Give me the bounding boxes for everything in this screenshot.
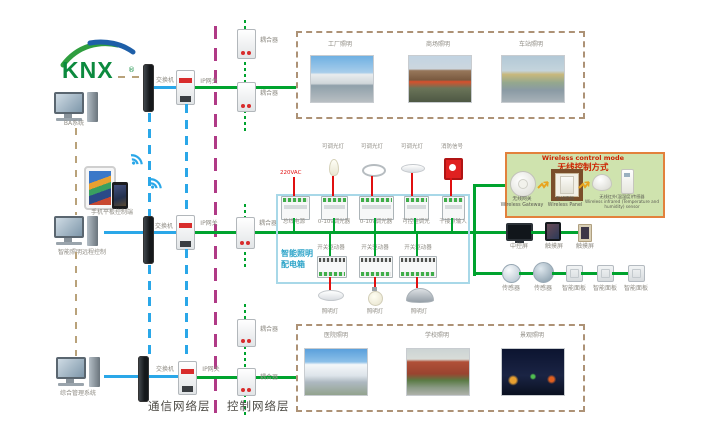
knx-logo-text: KNX bbox=[62, 57, 114, 83]
photo-school bbox=[406, 348, 470, 396]
label-touch-screen-1: 触摸屏 bbox=[540, 244, 568, 251]
module-switch-actuator-2 bbox=[359, 256, 393, 278]
switch-3 bbox=[138, 356, 149, 402]
wireless-gateway-device bbox=[510, 171, 536, 197]
module-face bbox=[445, 205, 462, 209]
bus-stub bbox=[333, 218, 335, 232]
pc-tower bbox=[87, 92, 98, 122]
label-ip-gateway-3: IP网关 bbox=[198, 367, 224, 374]
label-central-screen: 中控屏 bbox=[500, 244, 538, 251]
power-line bbox=[411, 173, 413, 196]
photo-station bbox=[501, 55, 565, 103]
label-smart-panel-3: 智能面板 bbox=[620, 286, 652, 293]
label-coupler-2: 耦合器 bbox=[256, 91, 282, 98]
rf-link-icon bbox=[537, 176, 550, 195]
monitor bbox=[54, 216, 84, 238]
knx-branch-line bbox=[473, 272, 502, 275]
label-switch-1: 交换机 bbox=[153, 78, 177, 85]
label-switch-2: 交换机 bbox=[152, 224, 176, 231]
power-line bbox=[293, 177, 295, 196]
lan-line bbox=[149, 375, 178, 378]
label-factory-lighting: 工厂照明 bbox=[310, 42, 370, 49]
gateway-terminals bbox=[182, 386, 193, 392]
photo-landscape bbox=[501, 348, 565, 396]
label-lamp-2: 照明灯 bbox=[359, 309, 391, 315]
knx-branch-line bbox=[473, 184, 476, 276]
label-wireless-gateway: 无线网关 Wireless Gateway bbox=[500, 197, 544, 209]
module-terminals bbox=[406, 198, 427, 202]
label-coupler-5: 耦合器 bbox=[256, 375, 282, 382]
distribution-box-title-line2: 配电箱 bbox=[281, 260, 313, 271]
lan-line bbox=[154, 231, 176, 234]
lan-dashed-line bbox=[148, 113, 151, 216]
ip-gateway-3 bbox=[178, 361, 197, 395]
coupler-terminals bbox=[241, 51, 245, 55]
gateway-band bbox=[179, 223, 192, 228]
label-sensor-1: 传感器 bbox=[497, 286, 525, 293]
label-switch-3: 交换机 bbox=[153, 367, 177, 374]
central-screen bbox=[506, 223, 533, 241]
label-lamp-1: 照明灯 bbox=[314, 309, 346, 315]
touch-screen-1 bbox=[545, 222, 561, 241]
diagram-canvas: KNX ® BA系统 手机平板控制端 智能照明远程控制 综合管理系统 交换机 I… bbox=[0, 0, 715, 443]
knx-branch-line bbox=[581, 272, 597, 275]
wireless-gateway-en: Wireless Gateway bbox=[501, 203, 544, 208]
module-dimmer-1 bbox=[321, 196, 348, 220]
lan-dashed-line bbox=[148, 265, 151, 357]
power-line bbox=[450, 178, 452, 196]
coupler-terminals bbox=[240, 241, 244, 245]
coupler-terminals bbox=[241, 388, 245, 392]
module-face bbox=[284, 205, 307, 209]
bus-stub bbox=[414, 218, 416, 232]
switch-1 bbox=[143, 64, 154, 112]
coupler-5 bbox=[237, 368, 256, 396]
label-smart-panel-2: 智能面板 bbox=[589, 286, 621, 293]
module-face bbox=[362, 205, 391, 209]
backbone-line bbox=[75, 252, 77, 356]
coupler-1 bbox=[237, 29, 256, 59]
label-dry-contact: 干接点输入 bbox=[435, 219, 471, 225]
label-fire-signal: 消防信号 bbox=[437, 144, 467, 150]
photo-factory bbox=[310, 55, 374, 103]
knx-branch-line bbox=[519, 272, 533, 275]
power-line bbox=[416, 277, 418, 288]
bus-stub bbox=[416, 234, 418, 256]
label-station-lighting: 车站照明 bbox=[501, 42, 561, 49]
backbone-line bbox=[75, 128, 77, 215]
gateway-terminals bbox=[180, 241, 191, 247]
monitor bbox=[54, 92, 84, 114]
lan-line bbox=[104, 375, 138, 378]
lamp-2 bbox=[368, 291, 383, 306]
label-mall-lighting: 商场照明 bbox=[408, 42, 468, 49]
label-ba-system: BA系统 bbox=[46, 121, 102, 128]
label-hospital-lighting: 医院照明 bbox=[306, 333, 366, 340]
monitor bbox=[56, 357, 86, 379]
module-terminals bbox=[283, 198, 308, 202]
label-wireless-sensor: 无线红外(温湿度)传感器 Wireless infrared (Temperat… bbox=[585, 194, 659, 209]
label-actuator-3: 开关驱动器 bbox=[395, 245, 441, 251]
label-school-lighting: 学校照明 bbox=[407, 333, 467, 340]
downlight-lamp bbox=[362, 164, 386, 177]
monitor-base bbox=[56, 242, 82, 245]
pc-tower bbox=[87, 216, 98, 246]
label-wireless-panel: 无线面板 Wireless Panel bbox=[543, 197, 587, 209]
power-line bbox=[329, 277, 331, 290]
module-terminals bbox=[361, 258, 391, 262]
lamp-1 bbox=[318, 290, 344, 301]
rf-link-icon bbox=[578, 176, 591, 195]
label-dimmable-lamp-2: 可调光灯 bbox=[357, 144, 387, 150]
monitor-base bbox=[58, 383, 84, 386]
phone bbox=[112, 182, 128, 209]
label-remote-control: 智能照明远程控制 bbox=[36, 250, 128, 257]
module-switch-actuator-3 bbox=[399, 256, 437, 278]
knx-registered-mark: ® bbox=[128, 66, 135, 74]
label-coupler-1: 耦合器 bbox=[256, 38, 282, 45]
candle-lamp bbox=[329, 159, 339, 176]
touch-screen-2 bbox=[578, 224, 592, 242]
fire-alarm bbox=[444, 158, 463, 180]
label-ip-gateway-2: IP网关 bbox=[196, 221, 222, 228]
wireless-sensor-unit bbox=[621, 169, 634, 194]
bus-stub bbox=[293, 218, 295, 232]
lan-line bbox=[104, 231, 143, 234]
lan-line bbox=[154, 86, 176, 89]
module-terminals bbox=[361, 198, 392, 202]
pc-remote-control bbox=[54, 216, 104, 252]
label-dimmable-lamp-3: 可调光灯 bbox=[397, 144, 427, 150]
label-coupler-4: 耦合器 bbox=[256, 327, 282, 334]
label-ip-gateway-1: IP网关 bbox=[196, 79, 222, 86]
pc-management-system bbox=[56, 357, 106, 393]
distribution-box-title: 智能照明 配电箱 bbox=[281, 249, 313, 271]
bus-stub bbox=[329, 234, 331, 256]
wireless-gateway-zh: 无线网关 bbox=[512, 197, 531, 202]
module-terminals bbox=[361, 272, 391, 276]
wireless-panel-zh: 无线面板 bbox=[555, 197, 574, 202]
wifi-icon bbox=[141, 168, 170, 198]
ip-gateway-2 bbox=[176, 215, 195, 250]
bus-stub bbox=[374, 218, 376, 232]
label-smart-panel-1: 智能面板 bbox=[558, 286, 590, 293]
power-line bbox=[371, 176, 373, 196]
lan-dashed-line bbox=[185, 104, 188, 214]
lamp-3 bbox=[406, 288, 434, 303]
label-lamp-3: 照明灯 bbox=[403, 309, 435, 315]
knx-branch-line bbox=[612, 272, 628, 275]
bus-stub bbox=[374, 234, 376, 256]
gateway-terminals bbox=[180, 96, 191, 102]
pc-tower bbox=[89, 357, 100, 387]
ceiling-lamp bbox=[401, 164, 425, 173]
sensor-2 bbox=[533, 262, 554, 283]
coupler-terminals bbox=[241, 339, 245, 343]
coupler-2 bbox=[237, 82, 256, 112]
label-communication-layer: 通信网络层 bbox=[148, 398, 211, 414]
gateway-band bbox=[181, 369, 194, 374]
label-control-layer: 控制网络层 bbox=[227, 398, 290, 414]
label-dimmer-2: 0-10v调光器 bbox=[353, 219, 399, 225]
knx-branch-line bbox=[561, 231, 578, 234]
label-dimmable-lamp-1: 可调光灯 bbox=[318, 144, 348, 150]
label-sensor-2: 传感器 bbox=[529, 286, 557, 293]
module-face bbox=[407, 205, 426, 209]
label-management-system: 综合管理系统 bbox=[46, 391, 110, 398]
knx-branch-line bbox=[552, 272, 566, 275]
wireless-sensor-en: Wireless infrared (Temperature and humid… bbox=[585, 199, 659, 209]
module-switch-actuator-1 bbox=[317, 256, 347, 278]
module-terminals bbox=[401, 272, 435, 276]
label-scr-dimmer: 可控硅调光 bbox=[398, 219, 434, 225]
smart-panel-3 bbox=[628, 265, 645, 282]
module-terminals bbox=[323, 198, 346, 202]
ip-gateway-1 bbox=[176, 70, 195, 105]
backbone-line bbox=[118, 76, 143, 78]
bus-stub bbox=[451, 218, 453, 232]
coupler-terminals bbox=[241, 104, 245, 108]
module-dimmer-2 bbox=[359, 196, 394, 220]
wireless-sensor-dome bbox=[592, 174, 612, 191]
photo-mall bbox=[408, 55, 472, 103]
label-landscape-lighting: 景观照明 bbox=[502, 333, 562, 340]
module-terminals bbox=[444, 198, 463, 202]
label-touch-screen-2: 触摸屏 bbox=[571, 244, 599, 251]
wireless-panel-en: Wireless Panel bbox=[548, 203, 583, 208]
module-terminals bbox=[319, 258, 345, 262]
power-line bbox=[332, 176, 334, 196]
coupler-3 bbox=[236, 217, 255, 249]
coupler-4 bbox=[237, 319, 256, 347]
module-face bbox=[324, 205, 345, 209]
module-scr-dimmer bbox=[404, 196, 429, 220]
label-mains: 220VAC bbox=[280, 170, 301, 176]
module-terminals bbox=[319, 272, 345, 276]
photo-hospital bbox=[304, 348, 368, 396]
module-dry-contact bbox=[442, 196, 465, 220]
lan-dashed-line bbox=[185, 249, 188, 360]
gateway-band bbox=[179, 78, 192, 83]
knx-branch-line bbox=[473, 184, 505, 187]
module-terminals bbox=[401, 258, 435, 262]
module-bus-power bbox=[281, 196, 310, 220]
label-actuator-1: 开关驱动器 bbox=[308, 245, 354, 251]
knx-branch-line bbox=[531, 231, 545, 234]
